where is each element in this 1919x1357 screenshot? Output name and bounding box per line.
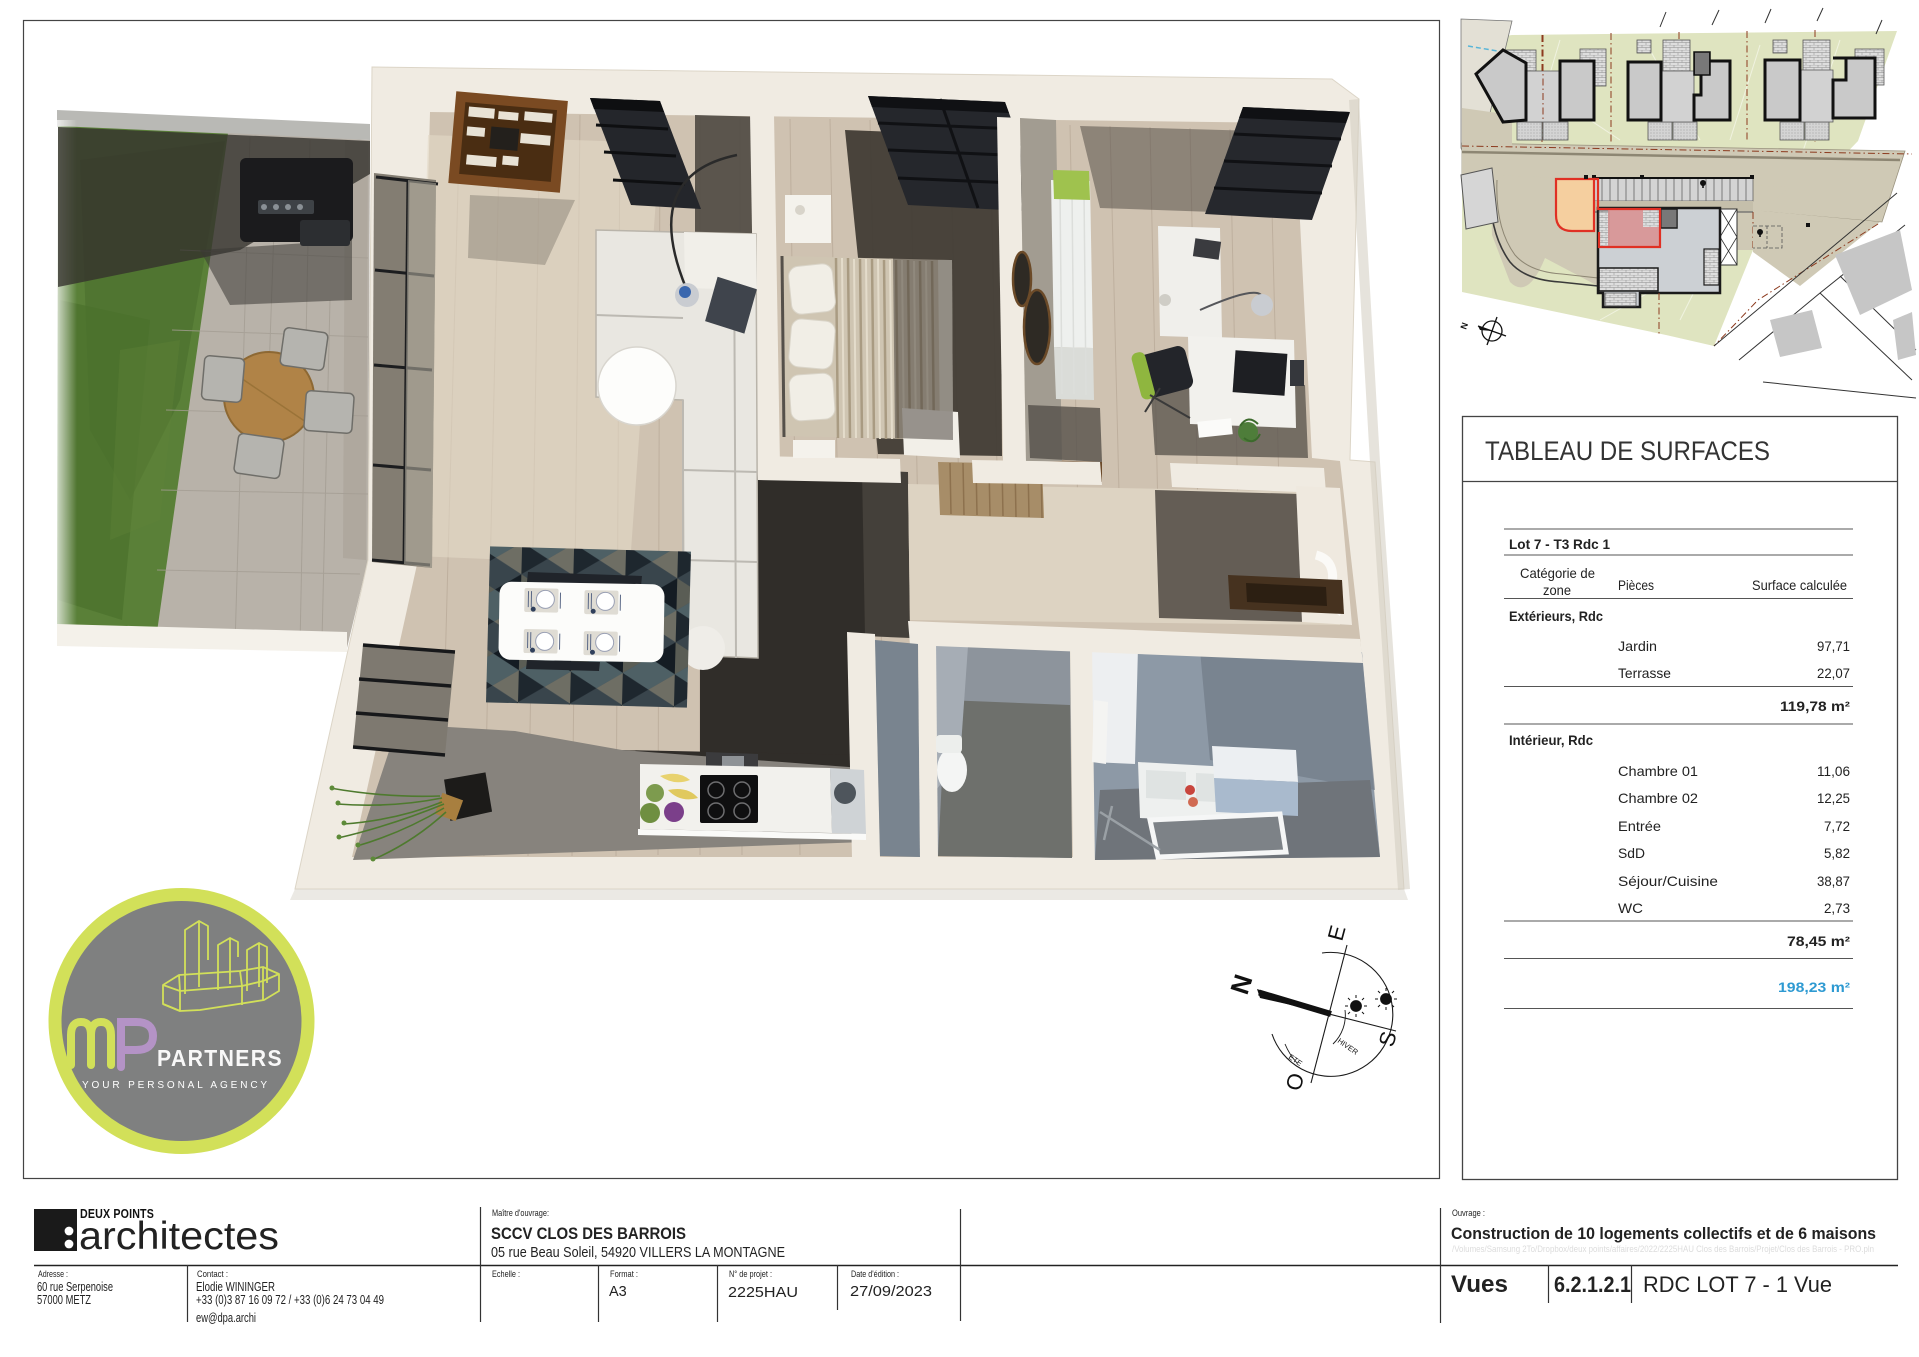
svg-text:2,73: 2,73 [1824,900,1850,916]
svg-text:97,71: 97,71 [1817,638,1850,654]
svg-text:Chambre 01: Chambre 01 [1618,763,1698,779]
svg-text:119,78 m²: 119,78 m² [1780,698,1850,714]
svg-text:11,06: 11,06 [1817,763,1850,779]
svg-text:5,82: 5,82 [1824,845,1850,861]
svg-text:Ouvrage :: Ouvrage : [1452,1208,1485,1219]
svg-text:Maître d'ouvrage:: Maître d'ouvrage: [492,1208,549,1219]
svg-text:Construction de 10 logements c: Construction de 10 logements collectifs … [1451,1225,1876,1243]
svg-text:Séjour/Cuisine: Séjour/Cuisine [1618,873,1718,889]
svg-text:Echelle :: Echelle : [492,1269,520,1280]
svg-text:7,72: 7,72 [1824,818,1850,834]
svg-text:+33 (0)3 87 16 09 72 / +33 (0): +33 (0)3 87 16 09 72 / +33 (0)6 24 73 04… [196,1292,384,1307]
svg-text:38,87: 38,87 [1817,873,1850,889]
svg-text:SdD: SdD [1618,845,1645,861]
svg-text:WC: WC [1618,900,1643,916]
svg-text:05 rue Beau Soleil, 54920 VILL: 05 rue Beau Soleil, 54920 VILLERS LA MON… [491,1245,785,1261]
svg-text:Pièces: Pièces [1618,577,1654,593]
svg-text:Date d'édition :: Date d'édition : [851,1269,899,1280]
svg-text:12,25: 12,25 [1817,790,1850,806]
svg-text:27/09/2023: 27/09/2023 [850,1284,932,1300]
svg-text:YOUR PERSONAL AGENCY: YOUR PERSONAL AGENCY [82,1079,270,1091]
svg-text:architectes: architectes [79,1215,279,1258]
svg-text:Chambre 02: Chambre 02 [1618,790,1698,806]
svg-text:Surface calculée: Surface calculée [1752,577,1847,593]
svg-text:PARTNERS: PARTNERS [157,1045,283,1071]
svg-text:Extérieurs, Rdc: Extérieurs, Rdc [1509,608,1603,624]
svg-text:Vues: Vues [1451,1271,1508,1298]
svg-text:Lot 7 - T3 Rdc 1: Lot 7 - T3 Rdc 1 [1509,536,1610,552]
svg-text:198,23 m²: 198,23 m² [1778,979,1850,995]
svg-text:zone: zone [1543,582,1571,598]
svg-text:22,07: 22,07 [1817,665,1850,681]
svg-text:Intérieur, Rdc: Intérieur, Rdc [1509,732,1593,748]
svg-text:Entrée: Entrée [1618,818,1661,834]
svg-text:N° de projet :: N° de projet : [729,1269,772,1280]
svg-text:Format :: Format : [610,1269,638,1280]
svg-text:6.2.1.2.1: 6.2.1.2.1 [1554,1272,1631,1297]
svg-text:/Volumes/Samsung 2To/Dropbox/d: /Volumes/Samsung 2To/Dropbox/deux points… [1452,1244,1874,1255]
svg-text:Catégorie de: Catégorie de [1520,565,1595,581]
svg-text:TABLEAU DE SURFACES: TABLEAU DE SURFACES [1485,436,1770,466]
svg-text:2225HAU: 2225HAU [728,1285,798,1301]
svg-text:ew@dpa.archi: ew@dpa.archi [196,1310,256,1325]
svg-text:SCCV CLOS DES BARROIS: SCCV CLOS DES BARROIS [491,1225,686,1243]
svg-text:78,45 m²: 78,45 m² [1787,933,1850,949]
svg-text:Jardin: Jardin [1618,638,1657,654]
svg-text:RDC LOT 7 - 1 Vue: RDC LOT 7 - 1 Vue [1643,1272,1832,1297]
svg-text:A3: A3 [609,1284,627,1300]
svg-text:Terrasse: Terrasse [1618,665,1671,681]
svg-text:57000 METZ: 57000 METZ [37,1292,91,1307]
